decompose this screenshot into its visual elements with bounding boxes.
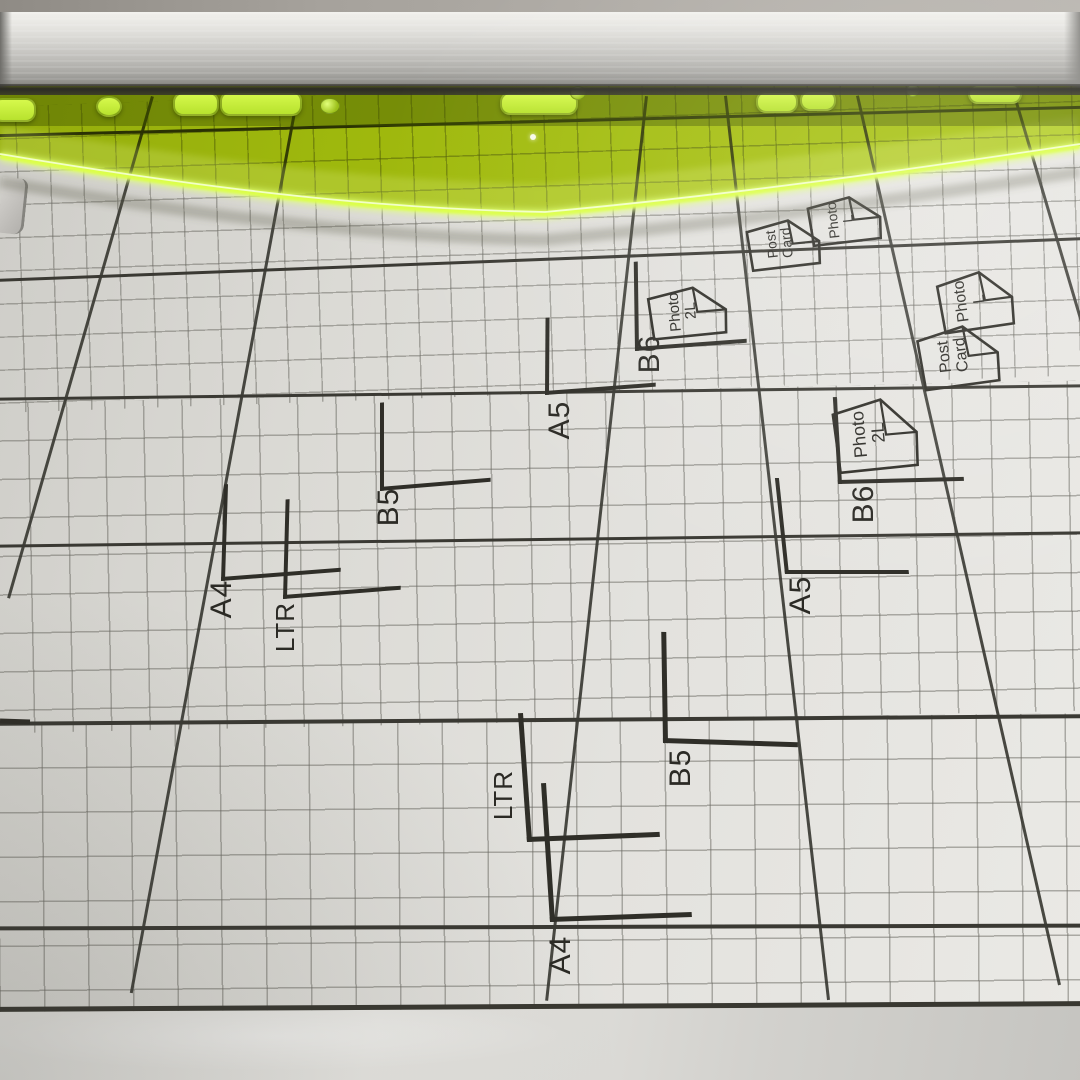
guard-slot xyxy=(173,92,219,116)
paper-icon-label: Photo2L xyxy=(826,385,912,481)
trimmer-board-photo: B6 A5 B5 A4 LTR B6 A5 B5 LTR A4 PostCard… xyxy=(0,0,1080,1080)
rail-end-right xyxy=(1064,12,1080,88)
size-label-b5-lower: B5 xyxy=(646,733,716,803)
rail-end-left xyxy=(0,12,12,88)
guard-slot xyxy=(500,92,578,115)
size-label-ltr-upper: LTR xyxy=(250,592,320,662)
paper-icon-label: PostCard xyxy=(915,309,991,402)
size-label-a5-upper: A5 xyxy=(525,385,595,455)
size-label-b5-upper: B5 xyxy=(354,472,424,542)
size-label-a4-lower: A4 xyxy=(526,920,596,990)
paper-icon-postcard-right: PostCard xyxy=(912,317,1005,393)
board-front-edge xyxy=(0,1001,1080,1080)
guard-slot xyxy=(0,98,36,122)
dust-speck xyxy=(530,134,536,140)
guard-bubble xyxy=(320,98,340,114)
paper-icon-photo-2l-right: Photo2L xyxy=(828,390,924,476)
size-mark-b5-lower xyxy=(661,632,798,747)
size-label-a4-upper: A4 xyxy=(187,564,257,634)
size-label-a5-lower: A5 xyxy=(766,560,836,630)
aluminum-rail xyxy=(0,12,1080,86)
size-label-ltr-lower: LTR xyxy=(468,760,538,830)
size-mark-partial-left-edge xyxy=(0,718,30,724)
guard-slot xyxy=(96,96,122,117)
rail-under-shadow xyxy=(0,84,1080,95)
